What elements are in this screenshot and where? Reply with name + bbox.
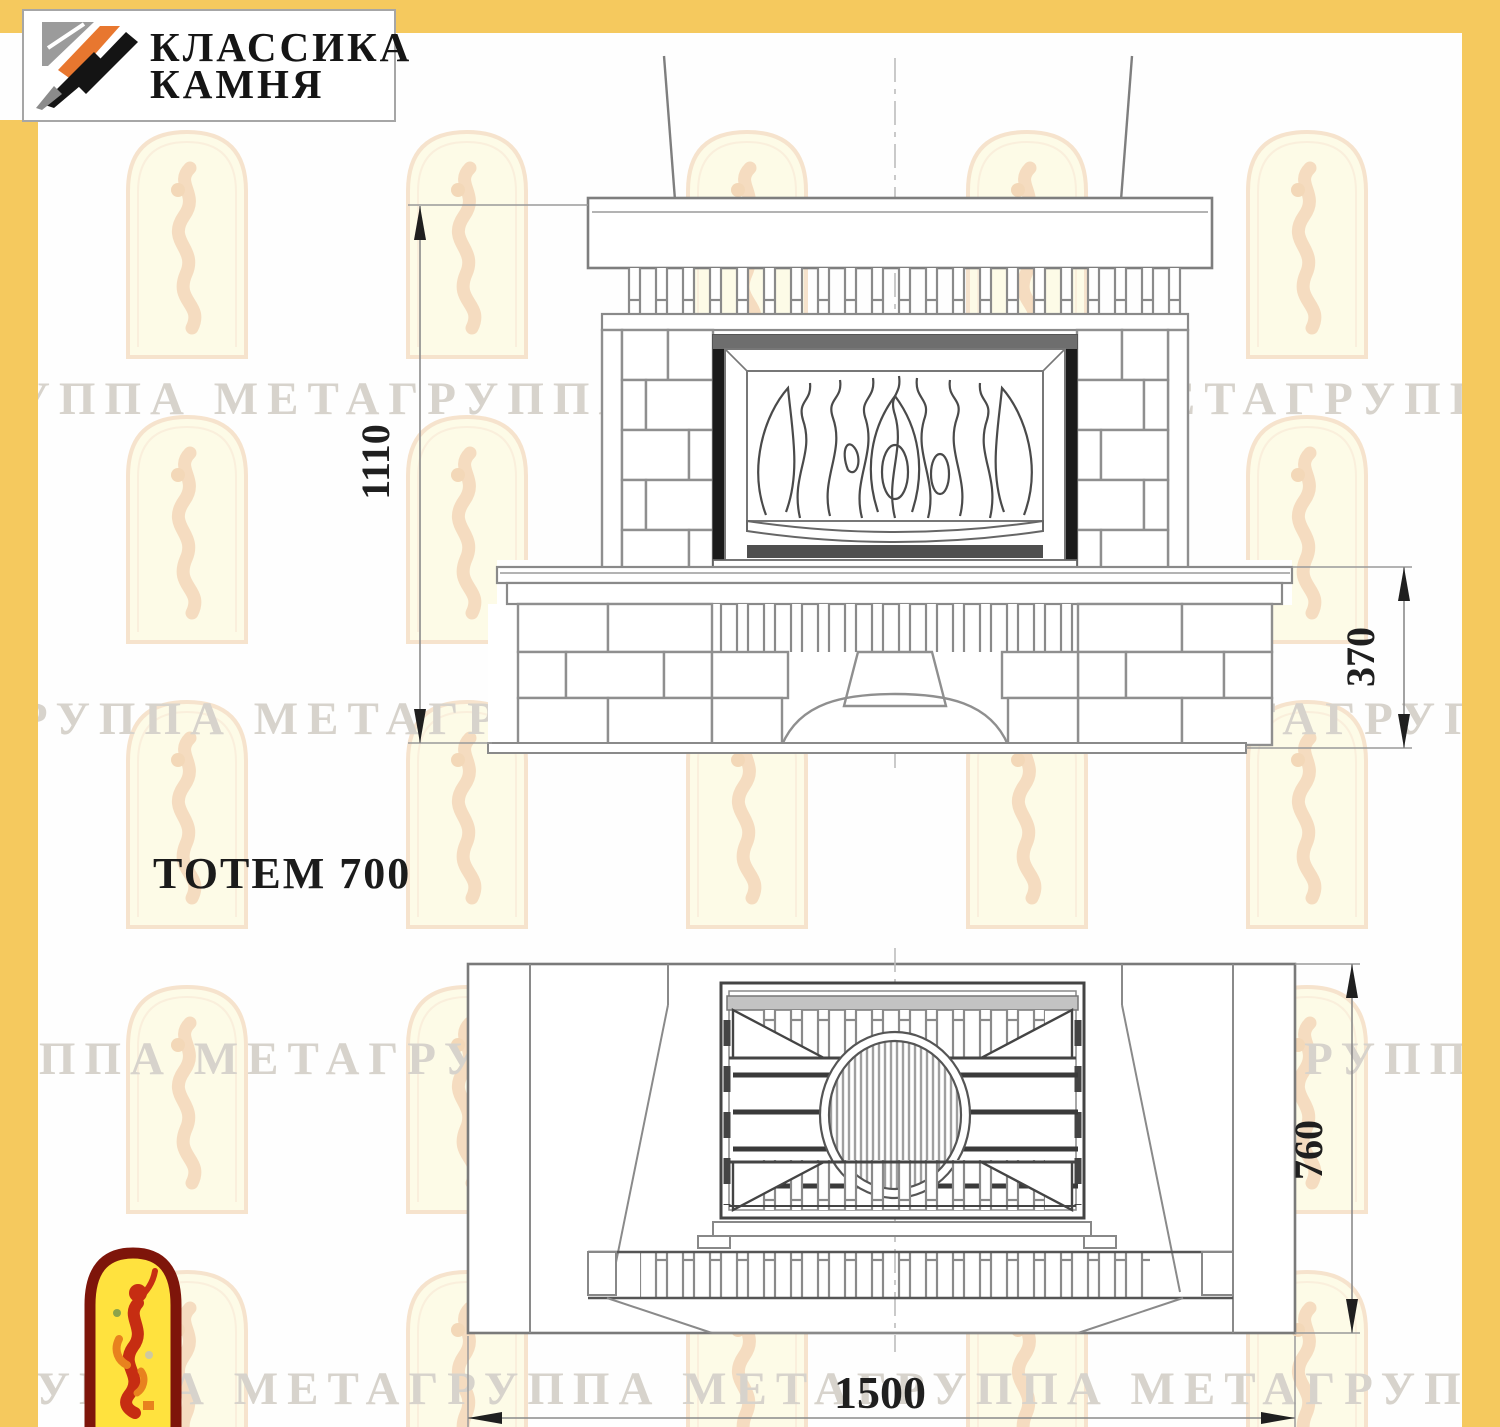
hearth-bench [497,567,1292,604]
dim-bench-height-label: 370 [1338,627,1383,687]
page: ГРУППА МЕТАГРУППА МЕТАГРУППА МЕТАГРУППА … [0,0,1500,1427]
plan-insert [721,983,1084,1218]
firebox [700,335,1090,600]
left-pier-bricks [602,330,713,568]
plan-dentils [588,1252,1233,1298]
dim-plan-width: 1500 [468,1336,1295,1427]
technical-drawing: 1110 370 [0,0,1500,1427]
dim-plan-depth-label: 760 [1286,1120,1331,1180]
dim-front-height-label: 1110 [353,424,398,500]
left-border-band [0,120,38,1427]
plan-view: 760 1500 [468,948,1360,1427]
right-pier-bricks [1077,330,1188,568]
firebox-top-bar [713,335,1077,349]
firebox-left-bar [713,349,725,575]
model-title: ТОТЕМ 700 [153,848,411,899]
brand-name-line2: КАМНЯ [150,64,412,105]
diagonal-stripes-icon [36,22,140,110]
brand-logo: КЛАССИКА КАМНЯ [22,9,396,122]
dentil-course [602,268,1188,330]
dim-plan-depth: 760 [1286,964,1360,1333]
plan-insert-front-band [727,996,1078,1010]
mantel-shelf [588,198,1212,268]
floor-line [488,743,1246,753]
keystone [844,652,946,706]
mascot-jester-icon [83,1243,183,1427]
front-view: 1110 370 [353,56,1412,768]
firebox-right-bar [1065,349,1077,575]
base-baluster-course [712,604,1078,652]
dim-plan-width-label: 1500 [834,1367,926,1418]
chimney-flue [664,56,1132,200]
right-border-band [1462,0,1500,1427]
brand-name: КЛАССИКА КАМНЯ [150,27,412,105]
